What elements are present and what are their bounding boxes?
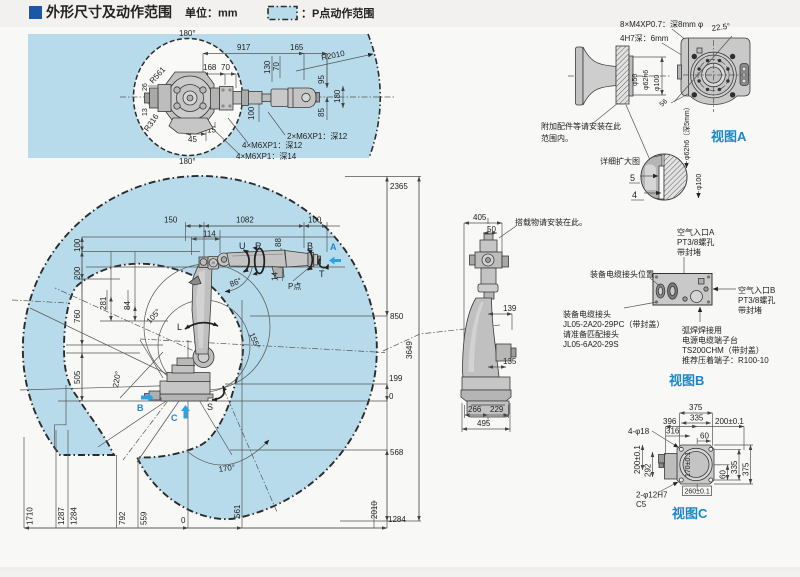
svg-text:495: 495 [477, 419, 491, 428]
svg-text:60: 60 [719, 470, 728, 479]
svg-text:1082: 1082 [236, 216, 254, 225]
svg-text:视图C: 视图C [672, 506, 708, 521]
svg-text:505: 505 [73, 370, 82, 384]
svg-text:1287: 1287 [57, 507, 66, 525]
svg-text:792: 792 [118, 511, 127, 525]
svg-text:PT3/8螺孔: PT3/8螺孔 [677, 237, 714, 247]
svg-text:视图B: 视图B [669, 373, 704, 388]
svg-text:附加配件等请安装在此: 附加配件等请安装在此 [541, 121, 621, 131]
svg-text:100: 100 [308, 216, 322, 225]
svg-text:φ50: φ50 [632, 74, 639, 86]
svg-text:空气入口B: 空气入口B [738, 285, 775, 295]
svg-text:装备电缆接头: 装备电缆接头 [563, 309, 611, 319]
svg-text:4-φ18: 4-φ18 [628, 427, 650, 436]
svg-text:375: 375 [742, 462, 751, 476]
svg-text:180°: 180° [179, 29, 196, 38]
svg-text:请准备匹配接头: 请准备匹配接头 [563, 329, 619, 339]
svg-text:260±0.1: 260±0.1 [685, 489, 710, 496]
svg-text:视图A: 视图A [711, 129, 747, 144]
svg-text:266: 266 [468, 405, 482, 414]
svg-text:135: 135 [503, 357, 517, 366]
svg-text:空气入口A: 空气入口A [677, 227, 715, 237]
svg-text:1284: 1284 [388, 515, 406, 524]
svg-text:130: 130 [263, 60, 272, 74]
svg-text:396: 396 [663, 417, 677, 426]
svg-text:JL05-2A20-29PC（带封盖）: JL05-2A20-29PC（带封盖） [563, 319, 664, 329]
svg-text:3649: 3649 [405, 341, 414, 359]
svg-text:带封堵: 带封堵 [738, 305, 762, 315]
svg-text:5: 5 [630, 173, 635, 183]
svg-text:165: 165 [290, 43, 304, 52]
svg-text:φ62h6（深5mm）: φ62h6（深5mm） [682, 103, 691, 160]
svg-text:U: U [239, 241, 246, 251]
svg-text:168: 168 [203, 63, 217, 72]
svg-text:2365: 2365 [390, 182, 408, 191]
svg-text:0: 0 [389, 392, 394, 401]
svg-text:229: 229 [490, 405, 504, 414]
svg-text:95: 95 [317, 75, 326, 84]
svg-text:114: 114 [203, 230, 216, 239]
svg-text:4×M6XP1：深14: 4×M6XP1：深14 [236, 152, 297, 161]
svg-text:45: 45 [188, 135, 197, 144]
svg-text:200: 200 [73, 266, 82, 280]
svg-text:760: 760 [73, 309, 82, 323]
svg-text:4×M6XP1：深12: 4×M6XP1：深12 [242, 141, 303, 150]
svg-text:S: S [207, 402, 213, 412]
svg-text:85: 85 [317, 108, 326, 117]
svg-text:单位：mm: 单位：mm [185, 6, 238, 20]
svg-text:60: 60 [700, 432, 709, 441]
svg-text:B: B [137, 403, 144, 413]
svg-text:4H7深：6mm: 4H7深：6mm [620, 34, 669, 43]
svg-text:：P点动作范围: ：P点动作范围 [301, 6, 374, 20]
svg-text:200±0.1: 200±0.1 [715, 417, 744, 426]
svg-text:917: 917 [237, 43, 251, 52]
svg-text:335: 335 [730, 460, 739, 474]
svg-text:弧焊焊接用: 弧焊焊接用 [682, 325, 722, 335]
svg-text:外形尺寸及动作范围: 外形尺寸及动作范围 [46, 4, 172, 20]
svg-text:带封堵: 带封堵 [677, 247, 701, 257]
svg-text:A: A [330, 242, 337, 252]
svg-text:559: 559 [140, 511, 149, 525]
svg-text:84: 84 [123, 301, 132, 310]
svg-text:850: 850 [390, 312, 404, 321]
svg-text:P点: P点 [288, 282, 301, 291]
svg-text:281: 281 [99, 296, 108, 310]
svg-text:180: 180 [333, 89, 342, 103]
svg-text:26: 26 [142, 83, 149, 91]
svg-text:TS200CHM（带封盖）: TS200CHM（带封盖） [682, 345, 764, 355]
svg-text:70: 70 [221, 63, 230, 72]
svg-text:4: 4 [632, 190, 637, 200]
svg-text:C: C [171, 413, 178, 423]
svg-text:139: 139 [503, 304, 517, 313]
svg-text:2010: 2010 [370, 501, 379, 519]
svg-text:C5: C5 [636, 500, 647, 509]
svg-text:100: 100 [247, 106, 256, 120]
svg-text:170±0.1: 170±0.1 [685, 452, 692, 477]
svg-text:2-φ12H7: 2-φ12H7 [636, 491, 668, 500]
svg-text:405: 405 [473, 213, 487, 222]
svg-text:70: 70 [272, 62, 281, 71]
svg-text:详细扩大图: 详细扩大图 [600, 156, 640, 166]
svg-text:568: 568 [390, 448, 404, 457]
svg-text:电源电缆端子台: 电源电缆端子台 [682, 335, 738, 345]
svg-text:8×M4XP0.7：深8mm φ: 8×M4XP0.7：深8mm φ [620, 20, 703, 29]
svg-text:13: 13 [142, 108, 149, 116]
svg-text:561: 561 [233, 504, 242, 518]
svg-text:180°: 180° [179, 157, 196, 166]
svg-text:PT3/8螺孔: PT3/8螺孔 [738, 295, 775, 305]
svg-text:316: 316 [666, 427, 680, 436]
svg-text:φ62h6: φ62h6 [643, 70, 650, 90]
svg-text:292: 292 [644, 463, 653, 477]
svg-text:2×M6XP1：深12: 2×M6XP1：深12 [287, 132, 348, 141]
svg-text:φ100: φ100 [654, 75, 661, 91]
svg-text:375: 375 [689, 403, 703, 412]
svg-text:L: L [177, 322, 182, 332]
svg-text:JL05-6A20-29S: JL05-6A20-29S [563, 340, 619, 349]
svg-text:装备电缆接头位置: 装备电缆接头位置 [590, 269, 654, 279]
svg-text:335: 335 [690, 414, 704, 423]
svg-text:推荐压着端子：R100-10: 推荐压着端子：R100-10 [682, 355, 769, 365]
svg-text:150: 150 [164, 216, 178, 225]
svg-text:搭载物请安装在此。: 搭载物请安装在此。 [515, 217, 587, 227]
svg-text:14: 14 [271, 272, 280, 281]
svg-text:100: 100 [73, 238, 82, 252]
svg-text:范围内。: 范围内。 [541, 133, 573, 143]
svg-text:φ100: φ100 [696, 174, 703, 190]
svg-text:200±0.1: 200±0.1 [633, 445, 642, 474]
svg-text:T: T [319, 269, 325, 279]
svg-text:88: 88 [274, 238, 283, 247]
svg-text:1710: 1710 [26, 507, 35, 525]
svg-text:1284: 1284 [70, 507, 79, 525]
svg-text:0: 0 [181, 516, 186, 525]
svg-text:199: 199 [389, 374, 403, 383]
